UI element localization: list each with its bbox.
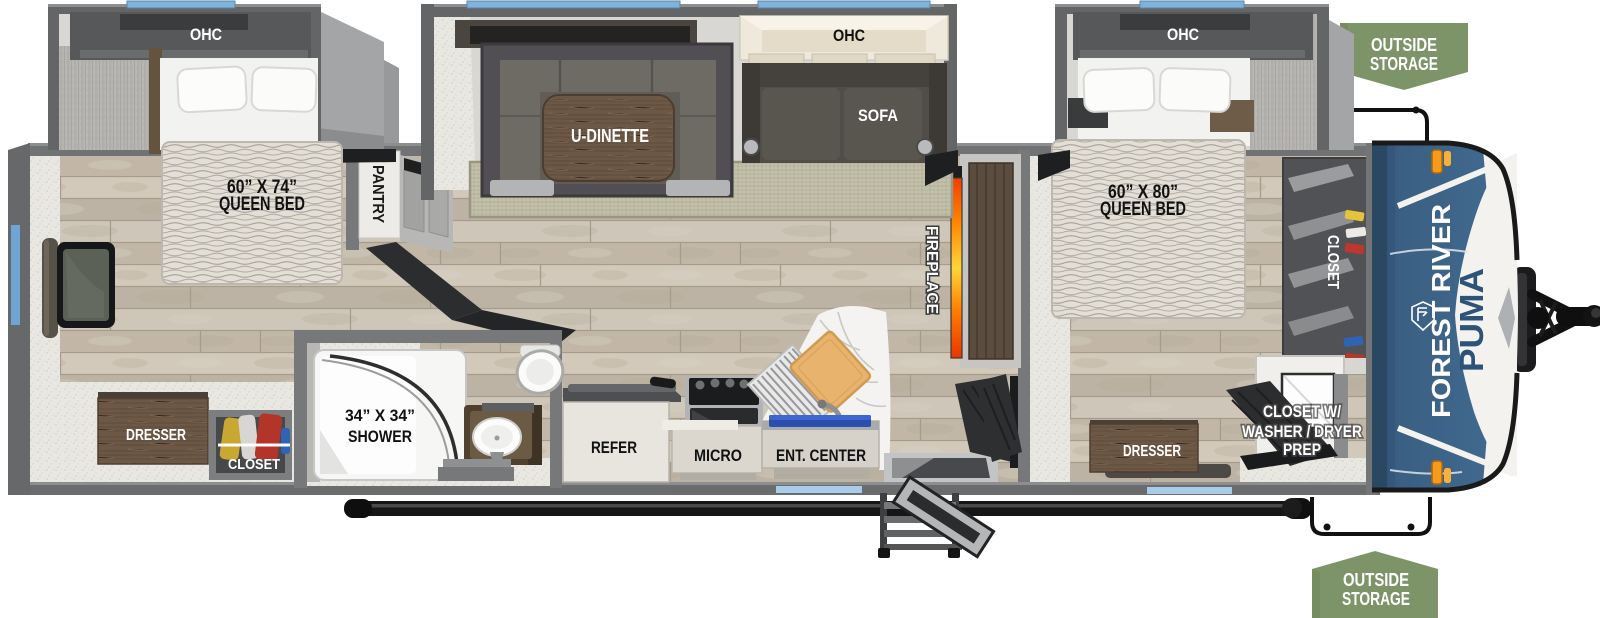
svg-text:OHC: OHC bbox=[190, 26, 222, 44]
svg-text:CLOSET: CLOSET bbox=[1324, 235, 1341, 289]
svg-text:PANTRY: PANTRY bbox=[369, 165, 386, 223]
svg-text:FIREPLACE: FIREPLACE bbox=[923, 226, 940, 314]
svg-text:OHC: OHC bbox=[833, 27, 865, 45]
svg-text:OUTSIDE: OUTSIDE bbox=[1371, 34, 1437, 55]
svg-text:QUEEN BED: QUEEN BED bbox=[219, 194, 305, 215]
svg-text:SOFA: SOFA bbox=[858, 106, 898, 125]
svg-text:MICRO: MICRO bbox=[694, 446, 742, 465]
svg-text:PREP: PREP bbox=[1283, 441, 1321, 459]
svg-text:CLOSET W/: CLOSET W/ bbox=[1263, 403, 1341, 421]
svg-text:CLOSET: CLOSET bbox=[228, 456, 280, 473]
svg-text:34” X 34”: 34” X 34” bbox=[345, 406, 415, 425]
svg-text:STORAGE: STORAGE bbox=[1370, 53, 1438, 74]
svg-text:OUTSIDE: OUTSIDE bbox=[1343, 569, 1409, 590]
svg-text:DRESSER: DRESSER bbox=[126, 427, 186, 444]
svg-text:FOREST RIVER: FOREST RIVER bbox=[1426, 204, 1456, 418]
svg-text:U-DINETTE: U-DINETTE bbox=[571, 126, 649, 146]
svg-text:DRESSER: DRESSER bbox=[1123, 443, 1181, 460]
svg-text:OHC: OHC bbox=[1167, 26, 1199, 44]
svg-text:QUEEN BED: QUEEN BED bbox=[1100, 199, 1186, 220]
svg-text:ENT. CENTER: ENT. CENTER bbox=[776, 446, 866, 465]
svg-text:STORAGE: STORAGE bbox=[1342, 588, 1410, 609]
svg-text:WASHER / DRYER: WASHER / DRYER bbox=[1242, 423, 1362, 441]
svg-text:REFER: REFER bbox=[591, 439, 637, 457]
svg-text:PUMA: PUMA bbox=[1453, 268, 1490, 372]
svg-text:SHOWER: SHOWER bbox=[348, 427, 412, 446]
